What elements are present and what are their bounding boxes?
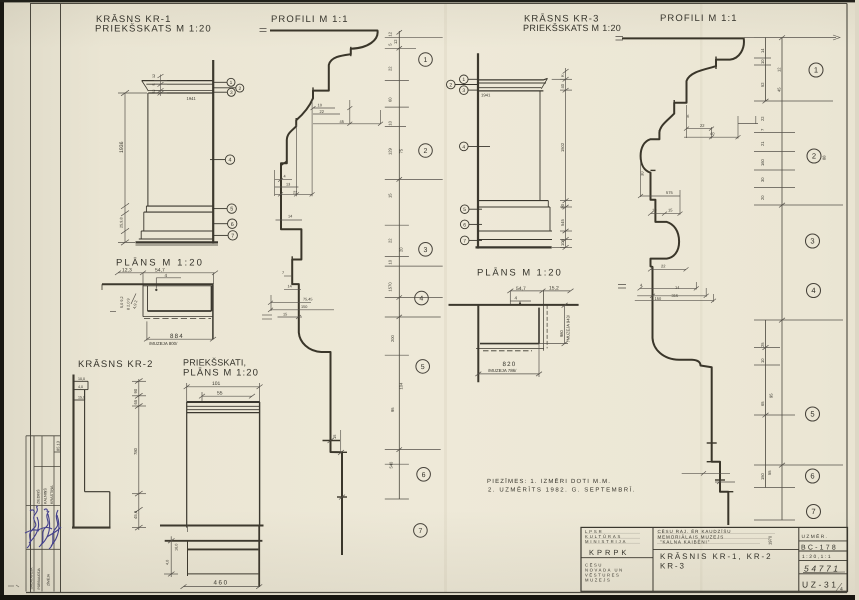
svg-text:10: 10 (318, 103, 323, 108)
svg-text:150: 150 (301, 305, 307, 309)
svg-text:10: 10 (388, 120, 393, 125)
svg-text:980: 980 (559, 329, 564, 337)
svg-text:90: 90 (133, 388, 138, 393)
svg-text:PRIEKŠSKATS M 1:20: PRIEKŠSKATS M 1:20 (95, 23, 212, 35)
svg-text:/MUZEJA 786/: /MUZEJA 786/ (488, 368, 517, 373)
svg-text:45: 45 (777, 87, 782, 92)
svg-text:/MUZEJA 943/: /MUZEJA 943/ (566, 314, 571, 341)
svg-text:14: 14 (288, 285, 292, 289)
svg-text:25,9,8: 25,9,8 (120, 217, 124, 228)
svg-text:4: 4 (419, 296, 423, 303)
svg-text:14: 14 (760, 48, 765, 53)
svg-text:4: 4 (515, 296, 518, 301)
svg-text:1: 1 (230, 80, 233, 86)
svg-text:BC-178: BC-178 (801, 545, 838, 552)
svg-text:1:20,1:1: 1:20,1:1 (802, 554, 832, 560)
svg-text:15: 15 (332, 434, 337, 439)
svg-text:12: 12 (777, 67, 782, 72)
svg-text:5: 5 (810, 410, 814, 419)
svg-text:101: 101 (212, 381, 221, 387)
svg-text:KR-3: KR-3 (660, 562, 686, 571)
svg-text:150: 150 (760, 472, 765, 480)
svg-text:8 2,0 9: 8 2,0 9 (127, 298, 131, 310)
svg-text:22: 22 (760, 116, 765, 121)
svg-text:KALNIŅŠ: KALNIŅŠ (43, 488, 48, 504)
svg-text:200: 200 (390, 334, 395, 342)
svg-text:545: 545 (560, 218, 565, 226)
svg-text:KRASTIŅA: KRASTIŅA (50, 485, 54, 504)
svg-text:3: 3 (424, 247, 428, 254)
svg-text:1936: 1936 (119, 141, 125, 153)
svg-text:108: 108 (560, 238, 565, 246)
svg-text:12: 12 (393, 39, 398, 44)
svg-text:75: 75 (398, 148, 403, 153)
svg-text:PLĀNS M 1:20: PLĀNS M 1:20 (183, 368, 259, 379)
svg-text:1941: 1941 (481, 92, 491, 97)
svg-text:22: 22 (320, 109, 325, 114)
svg-text:4: 4 (811, 286, 815, 295)
svg-text:21: 21 (760, 141, 765, 146)
svg-text:2: 2 (449, 82, 452, 88)
svg-text:1970: 1970 (768, 535, 773, 545)
svg-text:14: 14 (288, 215, 292, 219)
svg-text:KRĀSNS KR-2: KRĀSNS KR-2 (78, 359, 153, 370)
svg-text:1: 1 (814, 66, 818, 75)
svg-text:5: 5 (152, 84, 156, 86)
svg-text:575: 575 (666, 190, 673, 195)
svg-text:MINISTRIJA: MINISTRIJA (585, 539, 627, 544)
svg-text:KRĀSNIS KR-1, KR-2: KRĀSNIS KR-1, KR-2 (660, 552, 772, 561)
svg-text:20: 20 (398, 247, 403, 252)
svg-text:60: 60 (388, 97, 393, 102)
svg-text:1941: 1941 (187, 96, 197, 101)
svg-text:K: K (560, 74, 565, 77)
svg-text:90: 90 (560, 203, 565, 208)
svg-text:3: 3 (810, 237, 814, 246)
svg-text:/MUZEJA 800/: /MUZEJA 800/ (149, 341, 178, 346)
svg-text:540: 540 (389, 461, 394, 469)
svg-text:2: 2 (812, 152, 816, 161)
svg-text:1570: 1570 (388, 282, 393, 292)
svg-text:40: 40 (710, 131, 715, 136)
svg-text:45: 45 (340, 119, 345, 124)
svg-text:"KALNA KAIBĒNI": "KALNA KAIBĒNI" (660, 540, 710, 545)
svg-text:65: 65 (760, 401, 765, 406)
svg-text:4,0: 4,0 (166, 560, 170, 565)
svg-text:PRIEKŠSKATS M 1:20: PRIEKŠSKATS M 1:20 (523, 23, 621, 33)
svg-text:22: 22 (152, 90, 156, 94)
svg-text:45,0: 45,0 (133, 510, 138, 519)
svg-text:30: 30 (760, 177, 765, 182)
svg-text:ZIEDIŅŠ: ZIEDIŅŠ (36, 489, 41, 504)
svg-text:4,0: 4,0 (78, 385, 83, 389)
svg-text:22: 22 (661, 264, 666, 269)
svg-text:52: 52 (760, 82, 765, 87)
svg-text:15: 15 (388, 193, 393, 198)
svg-text:5: 5 (421, 364, 425, 371)
svg-text:KPRPK: KPRPK (589, 548, 629, 557)
svg-text:4: 4 (840, 587, 843, 593)
svg-text:4: 4 (165, 273, 168, 278)
svg-text:12: 12 (388, 31, 393, 36)
svg-text:10: 10 (388, 259, 393, 264)
svg-text:95: 95 (769, 393, 774, 398)
svg-text:15: 15 (668, 208, 673, 213)
svg-text:6: 6 (422, 472, 426, 479)
svg-text:ZĪMĒJA: ZĪMĒJA (47, 573, 51, 586)
svg-text:7: 7 (418, 528, 422, 535)
svg-text:PRIEKŠSKATI,: PRIEKŠSKATI, (183, 358, 246, 368)
svg-text:104: 104 (399, 382, 404, 390)
svg-text:PROFILI M 1:1: PROFILI M 1:1 (660, 13, 738, 24)
svg-text:5: 5 (230, 207, 233, 213)
svg-text:3: 3 (462, 88, 465, 94)
svg-text:5,0 9,2: 5,0 9,2 (120, 296, 124, 308)
svg-text:25: 25 (760, 342, 765, 347)
svg-text:PIEZĪMES: 1. IZMĒRI DOTI M.M.: PIEZĪMES: 1. IZMĒRI DOTI M.M. (487, 478, 611, 485)
svg-text:22: 22 (700, 123, 705, 128)
svg-text:3: 3 (230, 90, 233, 96)
svg-text:22: 22 (388, 238, 393, 243)
svg-text:MUZEJS: MUZEJS (585, 578, 611, 583)
svg-text:PĀRBAUDĪJA: PĀRBAUDĪJA (37, 567, 41, 589)
svg-text:UZMĒR.: UZMĒR. (802, 534, 829, 540)
svg-text:65: 65 (133, 399, 138, 404)
svg-text:UZ-31: UZ-31 (802, 580, 839, 590)
svg-text:6: 6 (463, 222, 466, 228)
svg-text:15,0: 15,0 (78, 396, 85, 400)
svg-text:7: 7 (811, 507, 815, 516)
svg-text:14: 14 (675, 285, 680, 290)
svg-text:7: 7 (282, 271, 284, 275)
svg-text:10: 10 (760, 59, 765, 64)
svg-text:55: 55 (767, 470, 772, 475)
svg-text:7: 7 (231, 234, 234, 240)
svg-text:85.13: 85.13 (56, 440, 61, 451)
svg-text:4: 4 (462, 144, 465, 150)
svg-text:55: 55 (217, 391, 223, 397)
svg-text:5: 5 (463, 207, 466, 213)
svg-text:2. UZMĒRĪTS 1982. G. SEPTEMBRĪ: 2. UZMĒRĪTS 1982. G. SEPTEMBRĪ. (488, 487, 636, 494)
svg-text:780: 780 (133, 447, 138, 455)
svg-text:4: 4 (284, 175, 286, 179)
svg-text:2: 2 (238, 86, 241, 92)
svg-text:16,0: 16,0 (175, 544, 179, 551)
svg-text:75,45: 75,45 (303, 298, 313, 302)
svg-text:4: 4 (229, 158, 232, 164)
svg-text:10,0: 10,0 (78, 377, 85, 381)
svg-text:22: 22 (388, 66, 393, 71)
svg-text:1: 1 (462, 77, 465, 83)
svg-text:15: 15 (283, 313, 287, 317)
svg-text:40: 40 (560, 83, 565, 88)
svg-text:30: 30 (640, 171, 645, 176)
svg-text:12: 12 (152, 74, 156, 78)
svg-text:7: 7 (463, 238, 466, 244)
svg-text:2: 2 (424, 148, 428, 155)
svg-text:460: 460 (214, 580, 229, 587)
svg-text:PLĀNS M 1:20: PLĀNS M 1:20 (477, 268, 563, 279)
svg-text:1: 1 (424, 57, 428, 64)
svg-text:88: 88 (822, 155, 827, 160)
svg-text:13: 13 (286, 183, 290, 187)
svg-text:6: 6 (231, 222, 234, 228)
svg-text:PROFILI M 1:1: PROFILI M 1:1 (271, 14, 349, 25)
svg-text:160: 160 (760, 158, 765, 166)
svg-text:129: 129 (388, 147, 393, 155)
svg-text:95: 95 (390, 407, 395, 412)
svg-text:6: 6 (810, 472, 814, 481)
svg-text:1502: 1502 (560, 142, 565, 152)
svg-text:10: 10 (760, 358, 765, 363)
svg-text:SAGATAVOJA: SAGATAVOJA (30, 567, 34, 590)
svg-text:20: 20 (760, 195, 765, 200)
